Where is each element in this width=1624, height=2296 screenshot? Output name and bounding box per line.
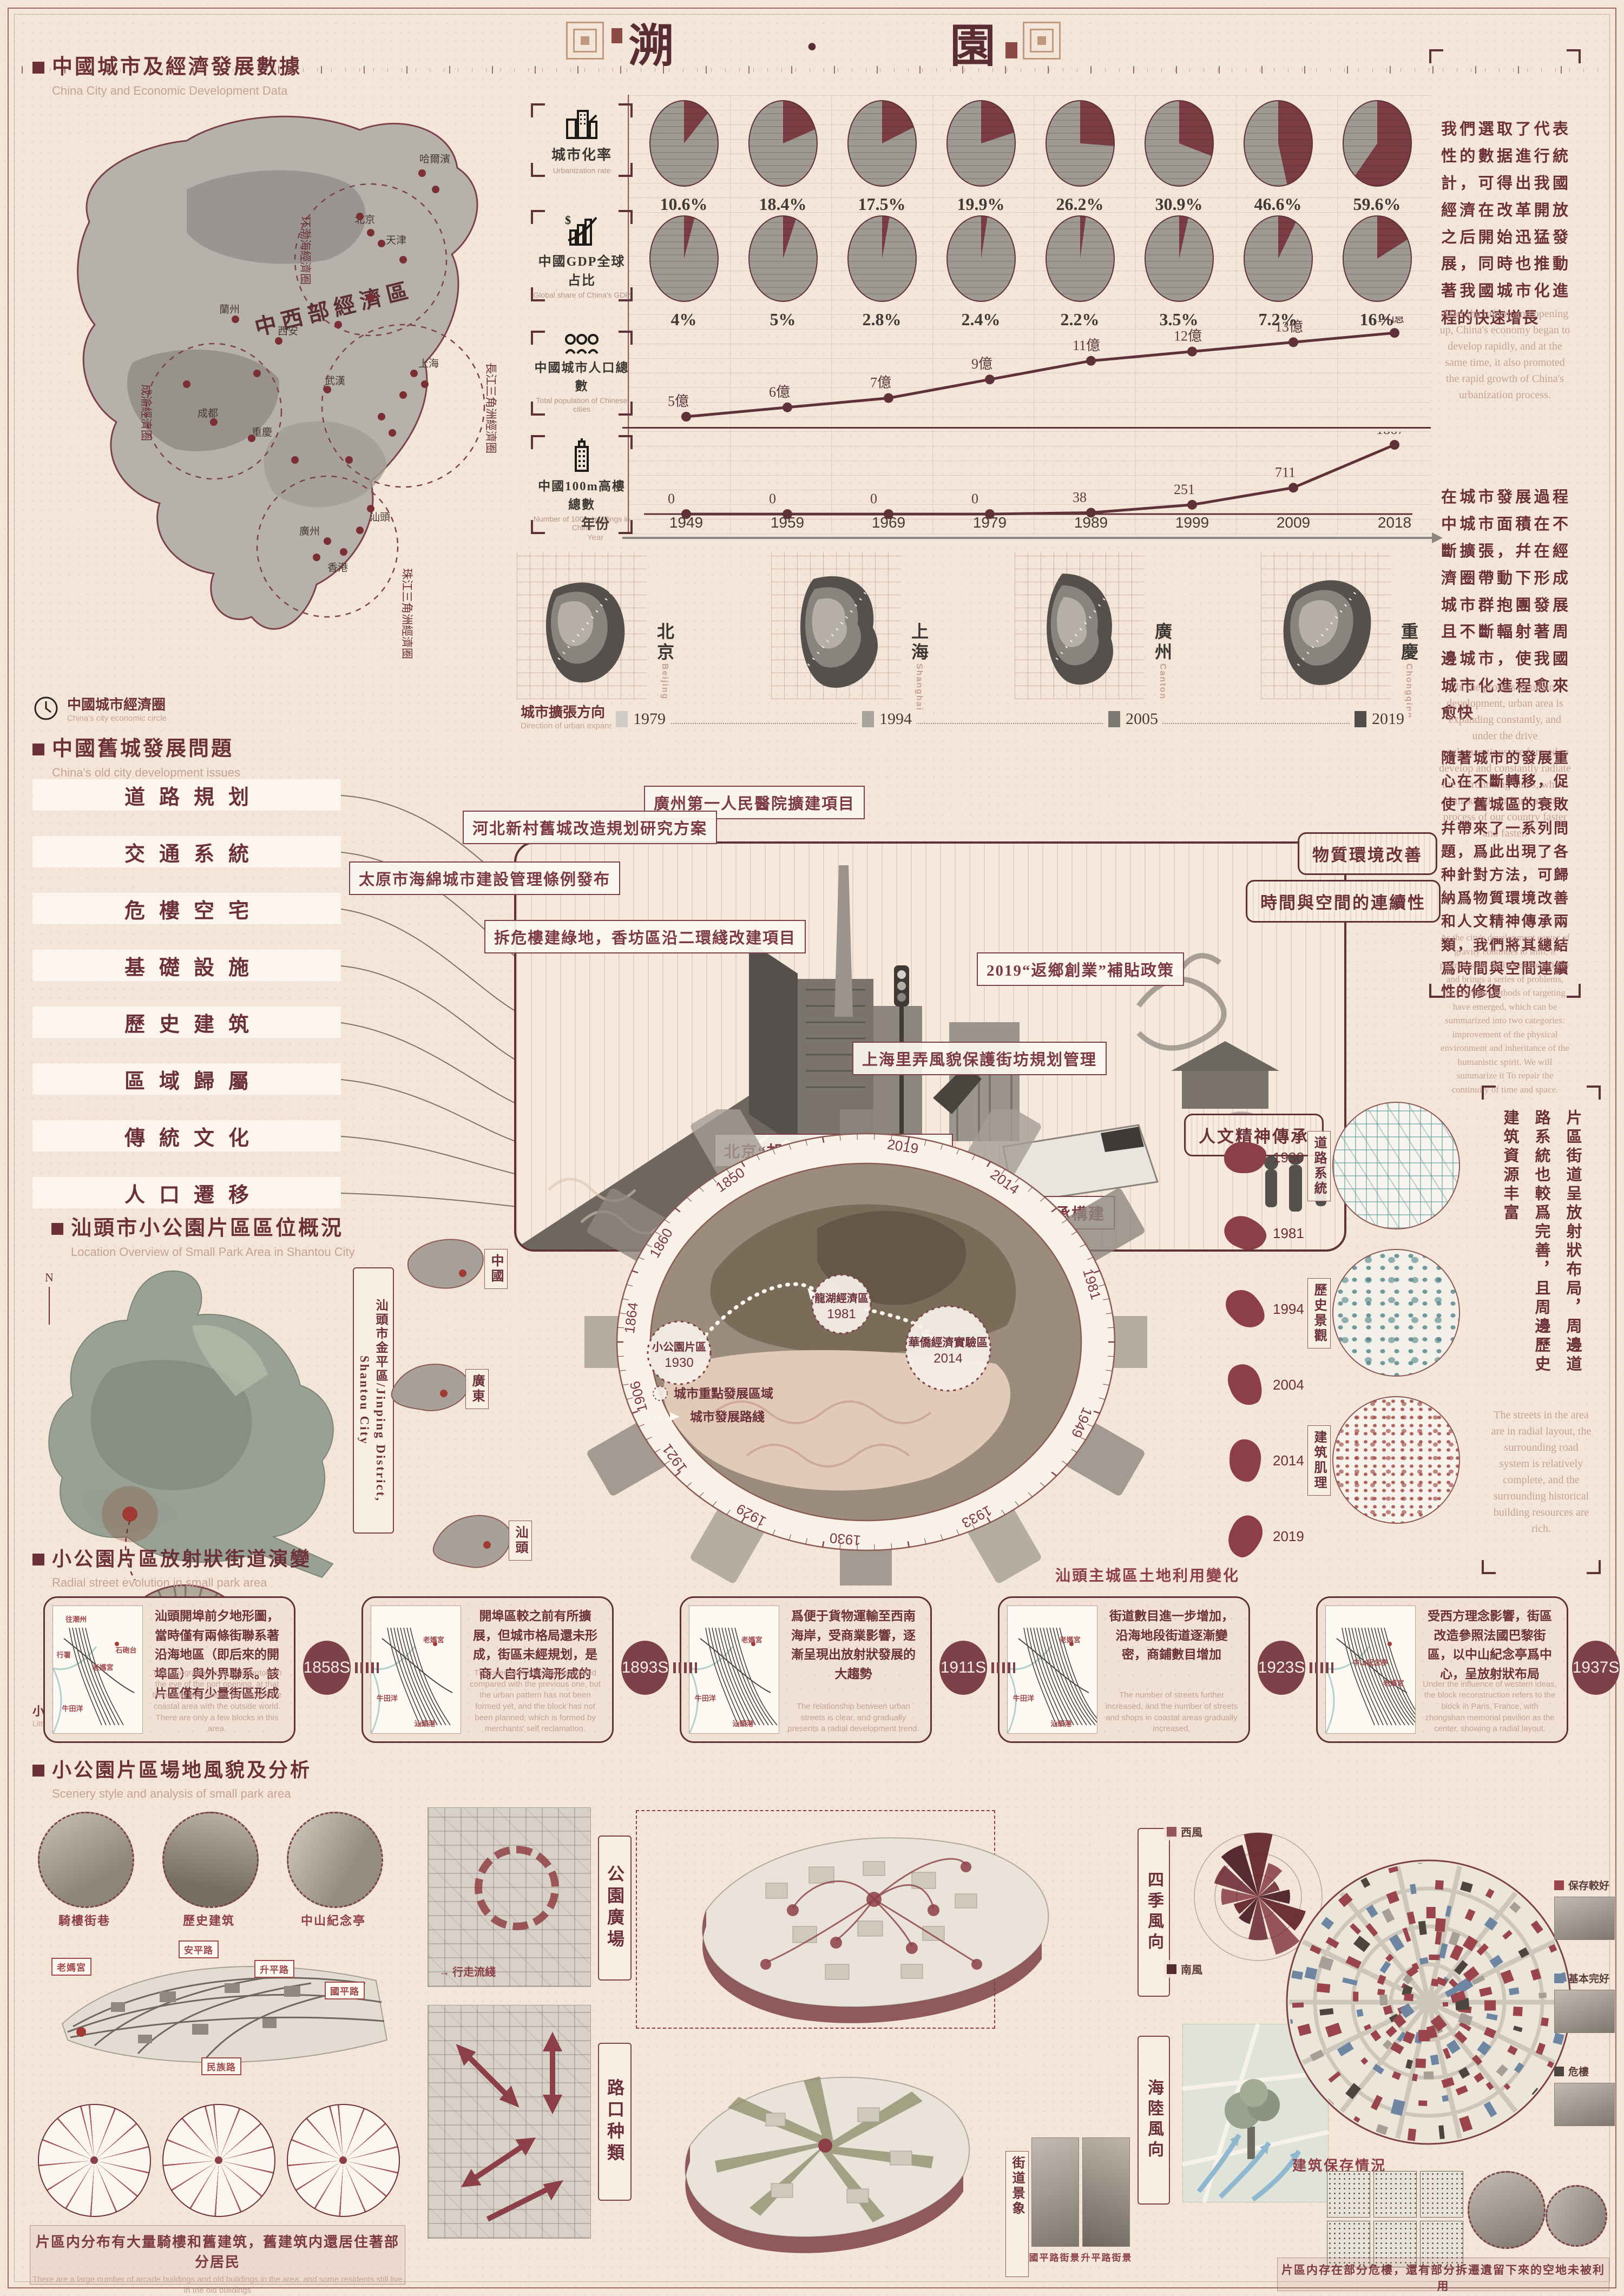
axon-model-bottom [630, 2043, 1009, 2275]
problem-label: 區域歸屬 [110, 1064, 263, 1094]
legend-swatch [1167, 1827, 1176, 1837]
photo-tag: 歷史建筑 [162, 1911, 255, 1929]
axis-year: 1989 [1056, 514, 1126, 531]
stage-en: Under the influence of western ideas, th… [1422, 1679, 1558, 1735]
pie-value-label: 46.6% [1228, 194, 1327, 214]
direction-zh: 城市擴張方向 [521, 701, 624, 721]
building-footprint [1426, 1907, 1436, 1918]
caption-right: 片區内存在部分危樓，還有部分拆遷遺留下來的空地未被利用 There are so… [1277, 2258, 1609, 2291]
city-dot [356, 213, 364, 220]
city-dot [356, 527, 364, 534]
city-dot [345, 456, 353, 464]
intersection-inset [428, 2005, 591, 2239]
expansion-blob [771, 552, 901, 699]
corner-bracket [619, 210, 633, 224]
metric-gdp: $ 中國GDP全球占比 Global share of China's GDP [533, 212, 630, 299]
city-label: 哈爾濱 [419, 153, 450, 165]
problem-box: 人口遷移 [32, 1177, 341, 1208]
pie-chart [1145, 215, 1214, 302]
timeline-item: 2005 [1104, 710, 1162, 728]
axis-year: 2009 [1258, 514, 1329, 531]
walk-flow-legend: → 行走流綫 [439, 1963, 496, 1979]
stage-map-label: 行署 [57, 1649, 71, 1660]
ring-year: 1930 [829, 1530, 862, 1549]
timeline-line [639, 723, 1358, 724]
building-footprint [1442, 2095, 1449, 2102]
building-footprint [1429, 1955, 1439, 1960]
pie-chart [1343, 100, 1412, 187]
corner-bracket [531, 520, 545, 534]
expansion-map-beijing [517, 552, 647, 699]
axis-year: 1969 [853, 514, 924, 531]
ornament-square [612, 28, 622, 43]
china-economic-map: 中西部經濟區 环渤海經濟圈 長江三角洲經濟圈 珠江三角洲經濟圈 成渝經濟圈 哈爾… [24, 81, 517, 687]
corner-bracket [531, 163, 545, 177]
texture-circle [1332, 1102, 1460, 1229]
street-photo [1082, 2137, 1130, 2247]
building-footprint [1538, 1992, 1547, 1998]
clock-icon [34, 696, 58, 721]
city-zh: 廣州 [1153, 622, 1172, 663]
city-dot [248, 435, 255, 442]
corner-bracket [1429, 984, 1443, 998]
pie-value-label: 17.5% [832, 194, 931, 214]
economic-circle-label: 成渝經濟圈 [140, 384, 153, 441]
corner-bracket [619, 103, 633, 117]
legend-swatch [1167, 1964, 1176, 1974]
city-dot [291, 456, 299, 464]
axis-year: 1959 [752, 514, 823, 531]
legend-swatch [1554, 1880, 1564, 1890]
point-label: 13億 [1275, 319, 1303, 334]
building-footprint [1424, 2071, 1434, 2080]
section-title-en: Radial street evolution in small park ar… [52, 1576, 312, 1590]
stage-map-label: 老媽宮 [1060, 1634, 1081, 1644]
corner-bracket [619, 287, 633, 301]
panel4-en: The streets in the area are in radial la… [1490, 1407, 1592, 1537]
metric-label-en: Urbanization rate [533, 166, 630, 175]
panel3-en: As the city's development center of grav… [1439, 931, 1571, 1096]
building-footprint [1305, 1967, 1318, 1980]
texture-circle [1332, 1396, 1460, 1524]
city-dot [232, 315, 239, 323]
people-icon [564, 333, 600, 354]
city-dot [378, 240, 385, 247]
stage-map-label: 牛田洋 [377, 1693, 398, 1703]
roundabout-arrows-icon [475, 1846, 559, 1930]
pie-cell: 26.2% [1030, 100, 1129, 214]
problem-box: 歷史建筑 [32, 1006, 341, 1038]
stage-map-label: 牛田洋 [695, 1693, 716, 1703]
axon-ribbon-label: 國平路 [325, 1982, 365, 1999]
economic-circle-label: 珠江三角洲經濟圈 [400, 568, 413, 659]
section-heading-analysis: 小公園片區場地風貌及分析 Scenery style and analysis … [32, 1754, 312, 1801]
legend-label: 基本完好 [1568, 1971, 1609, 1985]
landuse-year: 2014 [1273, 1452, 1304, 1469]
timeline-swatch [616, 711, 628, 727]
section-bullet-icon [51, 1223, 63, 1235]
pie-cell: 10.6% [634, 100, 733, 214]
problem-box: 基礎設施 [32, 950, 341, 981]
corner-bracket [619, 163, 633, 177]
marker-year: 1930 [665, 1356, 693, 1370]
callout-box: 太原市海綿城市建設管理條例發布 [349, 861, 620, 895]
category-box: 物質環境改善 [1298, 832, 1437, 875]
axon-ribbon-label: 安平路 [179, 1940, 219, 1958]
section-title-en: Scenery style and analysis of small park… [52, 1787, 312, 1801]
year-axis-zh: 年份 [574, 513, 617, 533]
line-series [686, 333, 1395, 417]
point-label: 0 [870, 491, 877, 506]
flow-circle-center [215, 2156, 222, 2164]
era-badge: 1893S [621, 1641, 669, 1695]
wind-legend-item: 南風 [1163, 1960, 1206, 1978]
landuse-shape [1222, 1510, 1268, 1562]
data-point [884, 393, 893, 403]
building-footprint [1443, 2002, 1448, 2006]
region-map [379, 1347, 476, 1423]
pie-cell: 2.8% [832, 215, 931, 330]
section-title: 小公園片區放射狀街道演變 [52, 1548, 312, 1570]
stage-map-svg [689, 1606, 779, 1733]
era-badge: 1937S [1572, 1641, 1620, 1695]
section-title: 中國舊城發展問題 [52, 738, 234, 760]
building-footprint [1317, 1983, 1330, 1993]
pie-cell: 59.6% [1327, 100, 1426, 214]
timeline-item: 1994 [858, 710, 916, 728]
line-chart-population: 5億6億7億9億11億12億13億14億 [622, 317, 1431, 425]
pie-cell: 2.4% [931, 215, 1030, 330]
landuse-item: 2014 [1224, 1445, 1304, 1476]
stage-en: The topographic map of Shantou on the ev… [149, 1668, 285, 1735]
section-bullet-icon [32, 744, 44, 755]
stage-map-svg [371, 1606, 461, 1733]
pie-chart [847, 215, 917, 302]
city-dot [432, 186, 439, 193]
city-dot [367, 505, 374, 512]
terrain-patch [187, 170, 366, 264]
caption-left-zh: 片區内分布有大量騎樓和舊建筑，舊建筑内還居住著部分居民 [30, 2231, 405, 2271]
expansion-map-canton [1015, 552, 1145, 699]
stage-map: 老媽宮牛田洋汕頭港 [371, 1606, 461, 1734]
ornament-square [1005, 42, 1017, 58]
stage-map-label: 往潮州 [65, 1614, 87, 1624]
city-label: 汕頭 [370, 511, 390, 523]
preservation-circle-map [1277, 1851, 1580, 2154]
expansion-map-chongqing [1261, 552, 1391, 699]
caption-right-zh: 片區内存在部分危樓，還有部分拆遷遺留下來的空地未被利用 [1278, 2261, 1609, 2294]
problem-box: 危樓空宅 [32, 893, 341, 924]
city-dot [378, 413, 385, 420]
pie-chart [1244, 100, 1313, 187]
pie-cell: 18.4% [733, 100, 832, 214]
section-bullet-icon [32, 62, 44, 74]
stage-map-label: 牛田洋 [62, 1703, 83, 1713]
metric-label-en: Total population of Chinese cities [533, 396, 630, 413]
data-point [681, 412, 691, 422]
fret-ornament-icon [566, 22, 604, 60]
corner-bracket [1587, 1560, 1601, 1574]
stage-map-label: 老媽宮 [93, 1662, 114, 1672]
pie-chart [1145, 100, 1214, 187]
building-footprint [1541, 2017, 1549, 2027]
landuse-year: 1994 [1273, 1301, 1304, 1318]
section-title: 小公園片區場地風貌及分析 [52, 1759, 312, 1781]
section-bullet-icon [32, 1554, 44, 1565]
legend-swatch [1554, 1973, 1564, 1983]
stage-map-label: 老媽宮 [423, 1634, 444, 1644]
city-dot [324, 537, 331, 545]
svg-text:$: $ [565, 213, 571, 227]
wind-legend-item: 西風 [1163, 1823, 1206, 1840]
region-map [422, 1499, 520, 1575]
preserve-legend-row: 危樓 [1554, 2064, 1618, 2078]
metric-label: 中國100m高樓總數 [533, 476, 630, 512]
tag-sea-land-wind: 海陸風向 [1138, 2036, 1170, 2205]
expansion-blob [1261, 552, 1391, 699]
problem-connectors [341, 779, 520, 1250]
corner-bracket [1567, 984, 1581, 998]
fret-ornament-icon [1023, 22, 1061, 60]
pie-cell: 16% [1327, 215, 1426, 330]
flow-circle [162, 2104, 275, 2217]
section-heading-evolution: 小公園片區放射狀街道演變 Radial street evolution in … [32, 1543, 312, 1590]
corner-bracket [1567, 49, 1581, 63]
location-text-panel: 片區街道呈放射狀布局，周邊道路系統也較爲完善，且周邊歷史建筑資源丰富 The s… [1484, 1088, 1599, 1572]
evolution-card: 老媽宮牛田洋汕頭港開埠區較之前有所擴展，但城市格局還未形成，街區未經規划，是商人… [361, 1596, 614, 1743]
corner-bracket [1429, 49, 1443, 63]
timeline-year: 1979 [633, 710, 666, 728]
pie-cell: 30.9% [1129, 100, 1228, 214]
timeline-year: 1994 [879, 710, 912, 728]
panel4-zh: 片區街道呈放射狀布局，周邊道路系統也較爲完善，且周邊歷史建筑資源丰富 [1494, 1109, 1588, 1391]
era-badge: 1858S [303, 1641, 351, 1695]
flow-circle [287, 2104, 400, 2217]
callout-box: 2019“返鄉創業”補貼政策 [977, 952, 1184, 986]
landuse-shape [1229, 1439, 1262, 1482]
building-footprint [1513, 2006, 1523, 2016]
site-photo-circle [287, 1812, 383, 1908]
city-label: 武漢 [325, 375, 345, 387]
city-dot [421, 380, 429, 388]
corner-bracket [531, 402, 545, 416]
city-dot [324, 386, 331, 393]
data-point [985, 374, 995, 384]
pie-cell: 5% [733, 215, 832, 330]
pie-chart [1046, 100, 1115, 187]
region-label: 汕頭 [509, 1521, 532, 1561]
city-label: 廣州 [299, 525, 320, 537]
metric-label: 城市化率 [533, 144, 630, 164]
section-bullet-icon [32, 1765, 44, 1777]
city-dot [275, 337, 282, 345]
stage-map: 老媽宮牛田洋汕頭港 [689, 1606, 779, 1734]
stage-map: 往潮州行署老媽宮石砲台牛田洋 [52, 1606, 143, 1734]
compass-n: N [45, 1271, 54, 1284]
preserve-legend-row: 保存較好 [1554, 1878, 1618, 1892]
metric-label: 中國GDP全球占比 [533, 251, 630, 288]
building-footprint [1484, 2000, 1496, 2010]
building-footprint [1435, 1918, 1446, 1932]
region-label: 廣東 [465, 1369, 489, 1409]
expansion-blob [1015, 552, 1145, 699]
pie-cell: 2.2% [1030, 215, 1129, 330]
park-square-inset: → 行走流綫 [428, 1807, 591, 1987]
callout-box: 河北新村舊城改造規划研究方案 [463, 811, 717, 844]
walk-flow-label: 行走流綫 [452, 1966, 496, 1978]
expansion-city-label: 重慶Chongqing [1396, 622, 1421, 719]
section-heading-problems: 中國舊城發展問題 China's old city development is… [32, 732, 240, 780]
shantou-satellite-map: N [30, 1261, 349, 1580]
stage-en: The relationship between urban streets i… [785, 1701, 922, 1735]
evolution-card: 老媽宮牛田洋汕頭港爲便于貨物運輸至西南海岸，受商業影響，逐漸呈現出放射狀發展的大… [680, 1596, 932, 1743]
tag-street-scene: 街道景象 [1005, 2151, 1029, 2277]
expansion-direction-caption: 城市擴張方向 Direction of urban expansion [521, 701, 624, 731]
stage-zh: 爲便于貨物運輸至西南海岸，受商業影響，逐漸呈現出放射狀發展的大趨勢 [785, 1607, 922, 1684]
section-title-en: China's old city development issues [52, 766, 240, 780]
point-label: 6億 [769, 384, 790, 400]
point-label: 7億 [870, 375, 891, 391]
preserve-legend-row: 基本完好 [1554, 1971, 1618, 1985]
evolution-card: 老媽宮牛田洋汕頭港街道數目進一步增加，沿海地段街道逐漸變密，商鋪數目增加The … [998, 1596, 1250, 1743]
problem-box: 區域歸屬 [32, 1063, 341, 1095]
stage-map-label: 老媽宮 [1383, 1677, 1404, 1688]
pie-chart [1343, 215, 1412, 302]
intersection-arrows [428, 2005, 590, 2238]
building-footprint [1404, 1994, 1413, 2001]
corner-bracket [531, 435, 545, 449]
econ-circle-zh: 中國城市經濟圈 [67, 694, 167, 714]
city-dot [389, 429, 396, 437]
city-dot [418, 169, 426, 177]
pie-cell: 7.2% [1228, 215, 1327, 330]
marker-name: 華僑經濟實驗區 [909, 1336, 988, 1349]
landuse-shape [1224, 1142, 1266, 1173]
corner-bracket [1587, 1085, 1601, 1100]
category-box: 時間與空間的連續性 [1246, 880, 1441, 923]
city-dot [367, 294, 374, 301]
city-zh: 上海 [909, 622, 929, 663]
pie-value-label: 59.6% [1327, 194, 1426, 214]
city-dot [340, 548, 347, 556]
tag-intersection-types: 路口种類 [598, 2043, 632, 2201]
pie-chart [748, 215, 818, 302]
pie-cell: 4% [634, 215, 733, 330]
point-label: 14億 [1376, 317, 1404, 325]
problem-label: 歷史建筑 [110, 1008, 263, 1037]
site-photo-circle [38, 1812, 134, 1908]
panel1-en: After the reform and opening up, China's… [1439, 306, 1571, 403]
landuse-year: 2019 [1273, 1528, 1304, 1545]
texture-circle [1332, 1249, 1460, 1377]
expansion-blob [517, 552, 647, 699]
site-photo-circle [1546, 2185, 1607, 2247]
street-caption: 升平路街景 [1078, 2250, 1135, 2264]
callout-box: 上海里弄風貌保護街坊規划管理 [852, 1042, 1107, 1075]
building-footprint [1353, 1992, 1358, 2002]
corner-bracket [531, 331, 545, 345]
city-dot [399, 391, 407, 399]
legend-photo [1554, 2083, 1615, 2126]
building-footprint [1418, 2100, 1427, 2106]
flow-circle-center [90, 2156, 98, 2164]
point-label: 9億 [971, 356, 992, 372]
data-point [1288, 337, 1298, 347]
corner-bracket [531, 210, 545, 224]
data-point [1187, 347, 1197, 357]
pie-chart [1046, 215, 1115, 302]
legend-label: 危樓 [1568, 2064, 1589, 2078]
section-title: 汕頭市小公園片區區位概況 [71, 1217, 344, 1240]
landuse-item: 1994 [1224, 1293, 1304, 1325]
section-title-en: Location Overview of Small Park Area in … [71, 1245, 355, 1259]
city-buildings-icon [564, 106, 600, 141]
city-dot [183, 380, 190, 388]
legend-route-label: 城市發展路綫 [690, 1410, 765, 1424]
point-label: 1867 [1376, 432, 1404, 437]
building-footprint [1415, 2058, 1426, 2068]
stage-map-label: 汕頭港 [1050, 1718, 1071, 1728]
stage-en: The open port area has expanded compared… [467, 1668, 603, 1735]
skyscraper-icon [569, 437, 594, 473]
landuse-item: 1981 [1224, 1218, 1304, 1249]
stage-map-label: 石砲台 [116, 1644, 137, 1655]
landuse-item: 2019 [1224, 1521, 1304, 1552]
pie-chart [946, 215, 1016, 302]
point-label: 38 [1073, 489, 1087, 505]
building-footprint [1431, 1978, 1439, 1986]
axis-year: 1979 [955, 514, 1025, 531]
city-dot [410, 370, 418, 377]
axon-ribbon-label: 老媽宮 [51, 1958, 91, 1976]
problem-label: 人口遷移 [110, 1178, 263, 1208]
corner-bracket [1482, 1085, 1496, 1100]
year-axis-line [622, 537, 1432, 539]
stage-map: 老媽宮牛田洋汕頭港 [1007, 1606, 1097, 1734]
landuse-item: 2004 [1224, 1369, 1304, 1400]
legend-photo [1554, 1990, 1615, 2033]
metric-label: 中國城市人口總數 [533, 357, 630, 394]
mini-plan [1373, 2171, 1417, 2218]
econ-circle-caption: 中國城市經濟圈 China's city economic circle [34, 694, 167, 723]
city-en: Shanghai [915, 663, 924, 711]
timeline-item: 1979 [612, 710, 670, 728]
caption-left: 片區内分布有大量騎樓和舊建筑，舊建筑内還居住著部分居民 There are a … [30, 2225, 405, 2285]
pie-cell: 17.5% [832, 100, 931, 214]
timeline-year: 2019 [1372, 710, 1404, 728]
data-point [783, 403, 792, 412]
building-footprint [1408, 2128, 1417, 2142]
texture-label: 建筑肌理 [1307, 1425, 1331, 1496]
year-axis-en: Year [574, 533, 617, 542]
expansion-map-shanghai [771, 552, 901, 699]
stage-zh: 受西方理念影響，街區改造參照法國巴黎街區，以中山紀念亭爲中心，呈放射狀布局 [1422, 1607, 1558, 1684]
mini-plan [1420, 2171, 1463, 2218]
metric-urbanization: 城市化率 Urbanization rate [533, 106, 630, 175]
building-footprint [1379, 1995, 1388, 2006]
marker-year: 2014 [933, 1351, 962, 1366]
point-label: 12億 [1174, 328, 1202, 344]
axis-year: 2018 [1359, 514, 1430, 531]
axis-year: 1999 [1157, 514, 1227, 531]
problem-label: 基礎設施 [110, 951, 263, 981]
pie-chart [946, 100, 1016, 187]
pie-value-label: 19.9% [931, 194, 1030, 214]
city-dot [210, 418, 218, 426]
city-en: Beijing [660, 663, 669, 700]
city-label: 成都 [198, 407, 218, 419]
mini-plan [1327, 2171, 1370, 2218]
